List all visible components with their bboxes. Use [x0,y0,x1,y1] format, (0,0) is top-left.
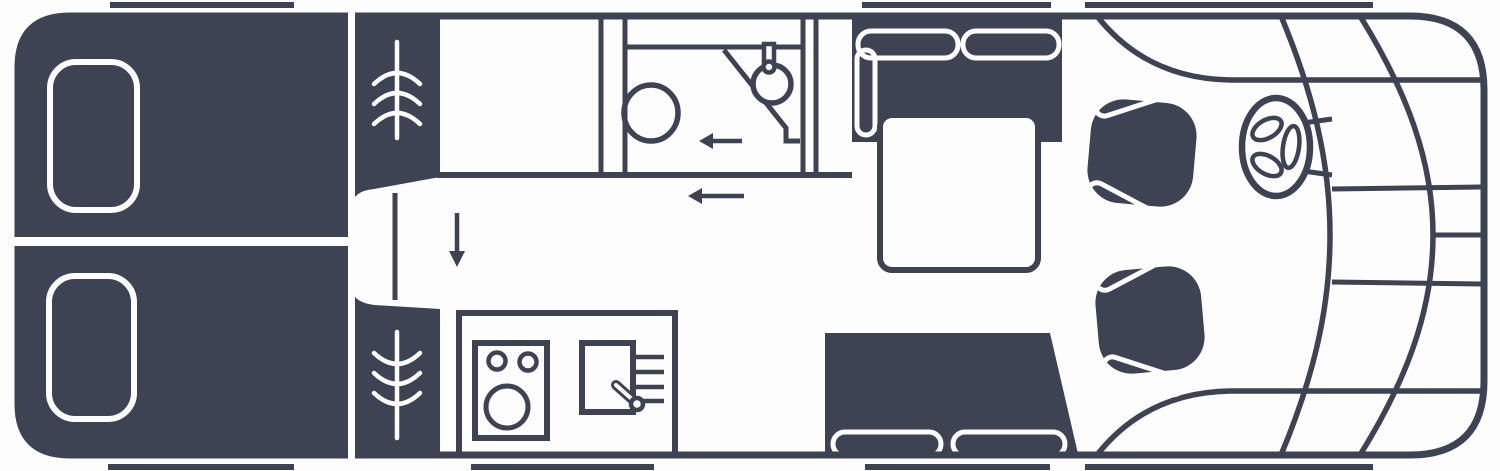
basin-tap-head [764,62,775,73]
steering-wheel-icon [1242,98,1310,196]
trim-bar-bottom-kitchen [471,464,654,470]
hood-seam-bottom [1332,282,1481,284]
hood-seam-top [1332,187,1481,189]
side-bench [825,333,1079,458]
trim-bar-bottom-middle [865,464,1050,470]
trim-bar-bottom-cab [1085,464,1373,470]
bedroom-partition-seam [348,9,355,462]
dinette-table [880,115,1038,270]
trim-bar-top-rear [110,2,294,8]
motorhome-floorplan [0,0,1500,471]
twin-bed-divider-line [0,237,353,246]
trim-bar-top-cab [1085,2,1373,8]
floorplan-canvas [0,0,1500,471]
dinette [852,13,1062,270]
trim-bar-bottom-rear [108,464,294,470]
sink-basin [582,343,633,412]
trim-bar-top-middle [862,2,1051,8]
